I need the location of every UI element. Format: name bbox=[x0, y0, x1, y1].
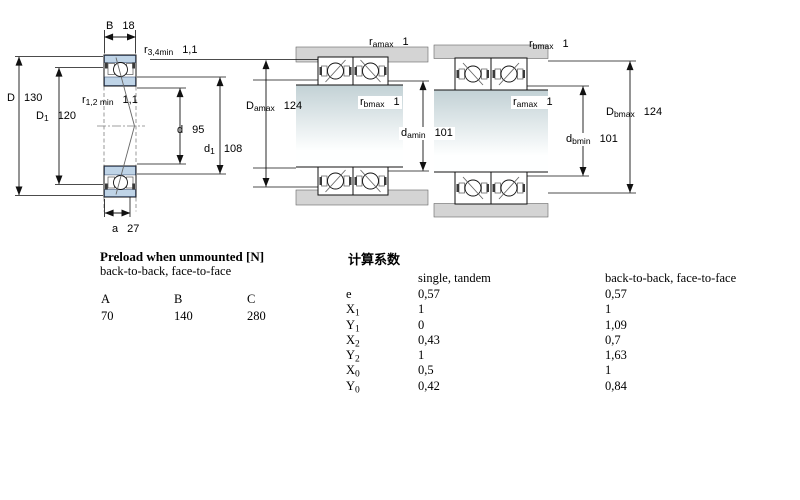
preload-header-b: B bbox=[174, 292, 247, 307]
factors-row-e: e0,570,57 bbox=[346, 287, 627, 302]
factors-table: e0,570,57 X111 Y101,09 X20,430,7 Y211,63… bbox=[346, 287, 627, 394]
dim-label-Damax: Damax124 bbox=[246, 100, 302, 113]
dim-label-d1: d1108 bbox=[204, 143, 242, 156]
factors-col-b2b: back-to-back, face-to-face bbox=[605, 271, 736, 286]
preload-header-a: A bbox=[101, 292, 174, 307]
dim-label-rbmax-b2b: rbmax1 bbox=[358, 96, 402, 109]
factors-row-y2: Y211,63 bbox=[346, 348, 627, 363]
dim-label-D1: D1120 bbox=[36, 110, 76, 123]
factors-col-single: single, tandem bbox=[418, 271, 491, 286]
preload-title: Preload when unmounted [N] bbox=[100, 249, 264, 265]
preload-value-row: 70 140 280 bbox=[101, 309, 320, 324]
dim-label-a: a27 bbox=[112, 223, 139, 236]
dim-label-B: B18 bbox=[106, 20, 135, 33]
factors-row-x2: X20,430,7 bbox=[346, 333, 627, 348]
preload-value-b: 140 bbox=[174, 309, 247, 324]
dim-label-d: d95 bbox=[177, 124, 204, 137]
dim-label-rbmax-f2f: rbmax1 bbox=[529, 38, 569, 51]
dim-label-damin: damin101 bbox=[399, 127, 455, 140]
factors-title: 计算系数 bbox=[348, 249, 400, 268]
preload-value-c: 280 bbox=[247, 309, 320, 324]
dim-label-Dbmax: Dbmax124 bbox=[606, 106, 662, 119]
preload-header-row: A B C bbox=[101, 292, 320, 307]
dim-label-r34: r3,4min1,1 bbox=[144, 44, 197, 57]
factors-row-x1: X111 bbox=[346, 302, 627, 317]
dim-label-D: D130 bbox=[7, 92, 42, 105]
bearing-spec-page: B18 r3,4min1,1 D130 D1120 r1,2 min1,1 d9… bbox=[0, 0, 800, 500]
preload-header-c: C bbox=[247, 292, 320, 307]
dim-label-r12: r1,2 min1,1 bbox=[82, 94, 138, 107]
preload-table: A B C 70 140 280 bbox=[101, 292, 320, 324]
factors-row-y0: Y00,420,84 bbox=[346, 379, 627, 394]
dim-label-ramax-f2f: ramax1 bbox=[511, 96, 555, 109]
dim-label-ramax-b2b: ramax1 bbox=[369, 36, 409, 49]
face-to-face-arrangement bbox=[434, 45, 636, 217]
factors-row-y1: Y101,09 bbox=[346, 318, 627, 333]
preload-value-a: 70 bbox=[101, 309, 174, 324]
preload-subtitle: back-to-back, face-to-face bbox=[100, 264, 231, 279]
dim-label-dbmin: dbmin101 bbox=[564, 133, 620, 146]
factors-row-x0: X00,51 bbox=[346, 363, 627, 378]
